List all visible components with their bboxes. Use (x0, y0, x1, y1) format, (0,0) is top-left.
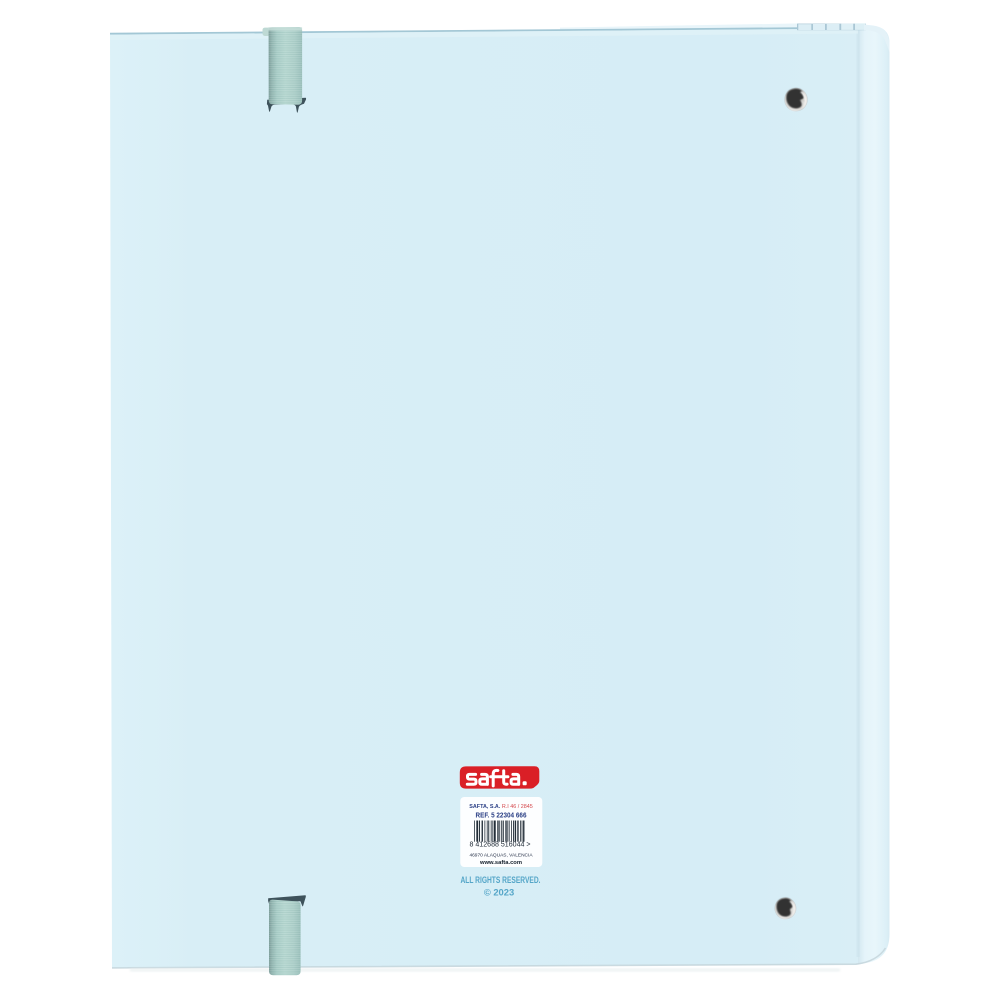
svg-text:© 2023: © 2023 (484, 887, 514, 898)
svg-text:SAFTA, S.A. R.I 46 / 2845: SAFTA, S.A. R.I 46 / 2845 (469, 804, 532, 810)
svg-text:46970 ALAQUAS, VALENCIA: 46970 ALAQUAS, VALENCIA (469, 852, 533, 858)
svg-text:8 412688 516044 >: 8 412688 516044 > (470, 842, 531, 849)
svg-text:www.safta.com: www.safta.com (479, 860, 522, 866)
svg-text:REF. 5 22304 666: REF. 5 22304 666 (476, 813, 527, 820)
svg-text:ALL RIGHTS RESERVED.: ALL RIGHTS RESERVED. (461, 874, 541, 885)
